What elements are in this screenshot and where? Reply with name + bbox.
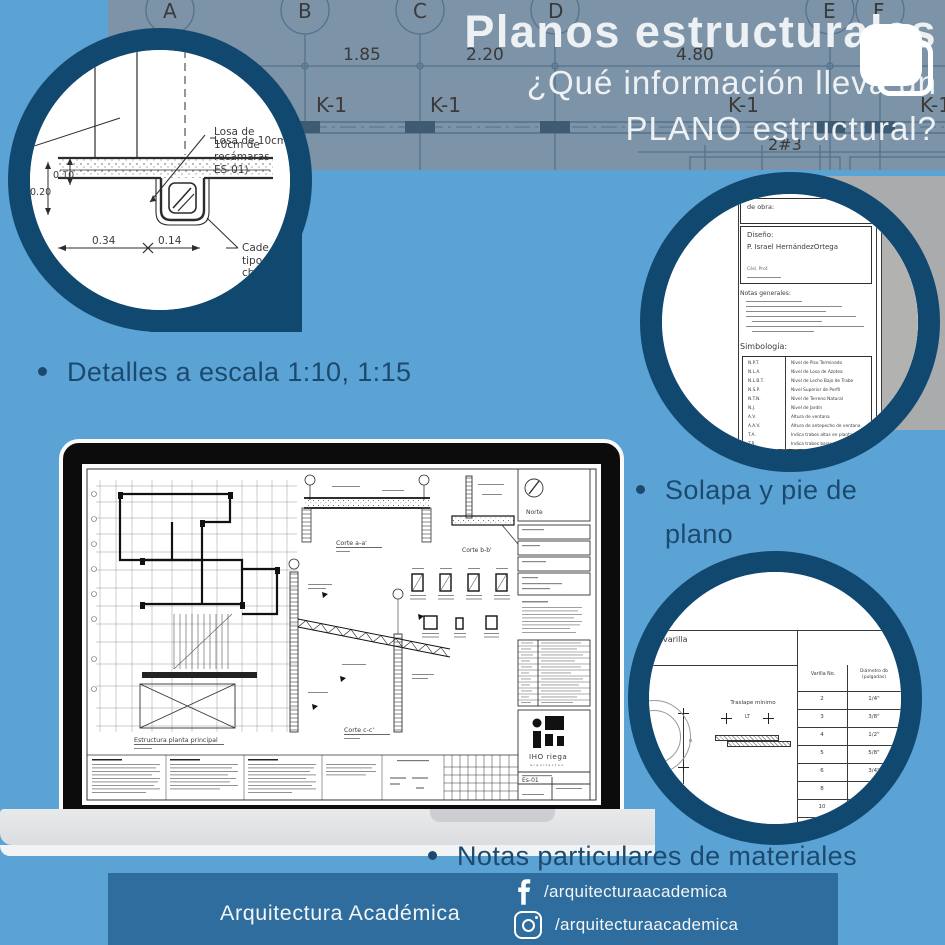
text-bar <box>746 326 864 327</box>
bullet-solapa-label: Solapa y pie de plano <box>665 468 890 556</box>
notas-title: Notas generales: <box>740 290 791 297</box>
varilla-label: varilla <box>663 635 688 644</box>
simbologia-title: Simbología: <box>740 342 787 351</box>
text-bar <box>746 316 856 317</box>
obra-label: de obra: <box>747 203 774 211</box>
symbol-desc: Nivel de Piso Terminado <box>791 361 842 366</box>
traslape-label: Traslape mínimo <box>711 700 795 706</box>
diseno-box: Diseño: P. Israel HernándezOrtega Céd. P… <box>740 226 872 284</box>
grid-letter: B <box>298 0 312 23</box>
dim-010: 0.10 <box>53 170 74 181</box>
varilla-no: 6 <box>797 768 847 774</box>
plus-mark <box>763 713 774 724</box>
table-top-line <box>649 630 901 631</box>
bullet-dot <box>38 367 47 376</box>
detail-circle: Losa de 10cm de recámaras ES-01) 0.20 0.… <box>8 28 312 332</box>
facebook-icon <box>516 878 531 906</box>
lt-label: LT <box>745 715 750 720</box>
brand-name: Arquitectura Académica <box>220 901 460 926</box>
cedula-label: Céd. Prof. <box>747 267 768 272</box>
beam-label: K-1 <box>316 93 347 117</box>
text-bar <box>746 306 842 307</box>
text-bar <box>746 301 802 302</box>
logo-text: IHO riega <box>529 752 567 761</box>
laptop-notch <box>430 809 555 822</box>
footer-band: Arquitectura Académica /arquitecturaacad… <box>108 873 838 945</box>
bullet-detalles-label: Detalles a escala 1:10, 1:15 <box>67 350 411 394</box>
symbol-desc: Indica trabes bajas en planta <box>791 442 853 447</box>
symbol-abbr: A.A.V. <box>748 424 760 429</box>
laptop-screen: Estructura planta principal Corte a-a' C… <box>82 464 601 805</box>
symbol-desc: Nivel de Lecho Bajo de Trabe <box>791 379 853 384</box>
symbol-abbr: N.L.A. <box>748 370 761 375</box>
varilla-circle: varilla Varilla No. Diámetro db (pulgada… <box>628 551 922 845</box>
row-line <box>797 745 901 746</box>
structural-plan-sheet: Estructura planta principal Corte a-a' C… <box>82 464 601 805</box>
logo-sub: arquitectos <box>530 763 565 767</box>
symbol-desc: Nivel Superior de Perfil <box>791 388 840 393</box>
designer-name: P. Israel HernándezOrtega <box>747 243 838 251</box>
solapa-circle-content: de obra: Diseño: P. Israel HernándezOrte… <box>662 194 918 450</box>
symbol-abbr: N.J. <box>748 406 755 411</box>
varilla-no: 5 <box>797 750 847 756</box>
bullet-solapa: Solapa y pie de plano <box>636 468 916 556</box>
varilla-no: 2 <box>797 696 847 702</box>
text-bar <box>746 311 826 312</box>
instagram-handle[interactable]: /arquitecturaacademica <box>555 915 738 935</box>
sheet-margin <box>882 194 918 450</box>
col-header-diametro: Diámetro db (pulgadas) <box>849 669 899 680</box>
symbol-desc: Nivel de Losa de Azotea <box>791 370 843 375</box>
corte-b-caption: Corte b-b' <box>462 547 492 554</box>
symbol-desc: Nivel de Jardín <box>791 406 822 411</box>
instagram-icon <box>514 911 542 939</box>
sheet-edge-line <box>876 194 877 450</box>
cadena-note-text: Cade tipo ch <box>242 242 269 280</box>
row-line <box>797 781 901 782</box>
facebook-handle[interactable]: /arquitecturaacademica <box>544 882 727 902</box>
solapa-circle: de obra: Diseño: P. Israel HernándezOrte… <box>640 172 940 472</box>
varilla-dia: 5/8" <box>847 750 901 756</box>
plan-caption: Estructura planta principal <box>134 737 218 744</box>
symbol-desc: Altura de antepecho de ventana <box>791 424 861 429</box>
symbol-desc: Altura de ventana <box>791 415 830 420</box>
dim-014: 0.14 <box>158 235 182 247</box>
symbol-abbr: A.V. <box>748 415 756 420</box>
varilla-no: 10 <box>797 804 847 810</box>
bullet-detalles: Detalles a escala 1:10, 1:15 <box>38 350 411 394</box>
dim-020: 0.20 <box>30 187 51 198</box>
grid-letter: A <box>163 0 177 23</box>
corte-a-caption: Corte a-a' <box>336 540 367 547</box>
row-line <box>797 799 901 800</box>
varilla-no: 8 <box>797 786 847 792</box>
symbol-abbr: T.B. <box>748 442 756 447</box>
row-line <box>797 709 901 710</box>
text-bar <box>752 321 822 322</box>
symbol-desc: Indica trabes altas en planta <box>791 433 852 438</box>
bullet-dot <box>636 485 645 494</box>
symbol-abbr: N.L.B.T. <box>748 379 764 384</box>
varilla-dia: 1/2" <box>847 732 901 738</box>
varilla-no: 3 <box>797 714 847 720</box>
symbol-abbr: N.T.N. <box>748 397 761 402</box>
table-line <box>649 665 797 666</box>
row-line <box>797 763 901 764</box>
dim-034: 0.34 <box>92 235 116 247</box>
bullet-notas-label: Notas particulares de materiales <box>457 834 857 878</box>
plus-mark <box>721 713 732 724</box>
symbol-desc: Nivel de Terreno Natural <box>791 397 843 402</box>
varilla-dia: 3/4" <box>847 768 901 774</box>
varilla-dia: 3/8" <box>847 714 901 720</box>
symbol-abbr: T.A. <box>748 433 756 438</box>
table-divider <box>785 357 786 450</box>
sheet-edge-line <box>881 194 882 450</box>
bullet-dot <box>428 851 437 860</box>
splice-bar <box>727 741 791 747</box>
beam-label: K-1 <box>430 93 461 117</box>
varilla-dia: 1/4" <box>847 696 901 702</box>
page-subtitle-line2: PLANO estructural? <box>464 106 937 152</box>
varilla-no: 4 <box>797 732 847 738</box>
row-line <box>797 817 901 818</box>
symbol-abbr: N.P.T. <box>748 361 759 366</box>
col-header-varilla: Varilla No. <box>801 672 845 677</box>
losa-note-text: Losa de 10cm de recámaras ES-01) <box>214 126 270 176</box>
row-line <box>797 691 901 692</box>
text-bar <box>747 277 781 278</box>
dim-label: 1.85 <box>343 45 381 65</box>
titleblock-edge-line <box>738 194 739 450</box>
row-line <box>797 727 901 728</box>
text-bar <box>752 331 814 332</box>
varilla-circle-content: varilla Varilla No. Diámetro db (pulgada… <box>649 572 901 824</box>
facebook-row[interactable]: /arquitecturaacademica <box>516 878 727 906</box>
corte-c-caption: Corte c-c' <box>344 727 374 734</box>
grid-letter: C <box>413 0 427 23</box>
simbologia-table: N.P.T. Nivel de Piso Terminado N.L.A. Ni… <box>742 356 872 450</box>
carousel-icon <box>860 24 922 86</box>
symbol-abbr: N.S.P. <box>748 388 760 393</box>
obra-box: de obra: <box>740 198 872 224</box>
diseno-label: Diseño: <box>747 231 773 239</box>
bullet-notas: Notas particulares de materiales <box>428 834 857 878</box>
detail-circle-content: Losa de 10cm de recámaras ES-01) 0.20 0.… <box>30 50 290 310</box>
infographic-canvas: A B C D E F 1.85 2.20 4.80 K-1 K-1 K-1 K… <box>0 0 945 945</box>
norte-label: Norte <box>526 509 543 516</box>
instagram-row[interactable]: /arquitecturaacademica <box>514 911 738 939</box>
sheet-number: Es-01 <box>522 777 539 784</box>
